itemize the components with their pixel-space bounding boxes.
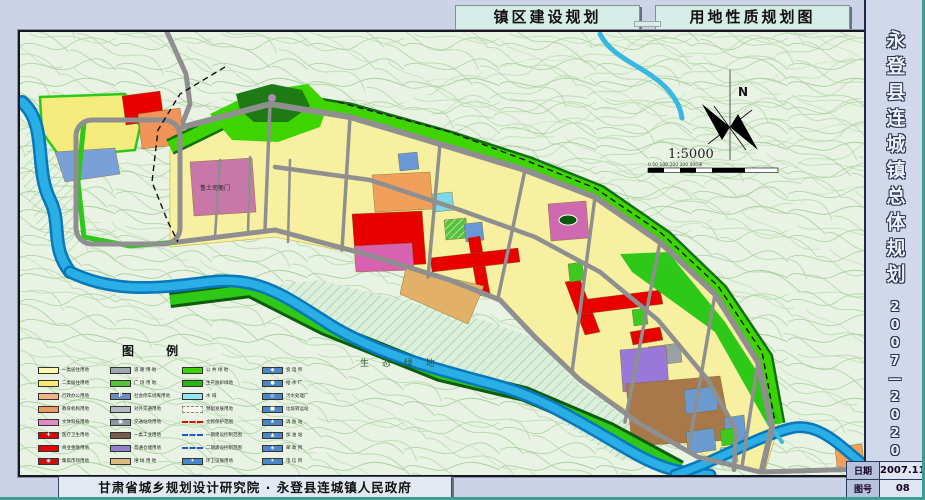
legend-label: 公 共 绿 地	[206, 367, 228, 373]
map-panel: 鲁土司衙门 生 态 绿 地 N 1:5000 0 50 100 200 300 …	[18, 30, 866, 477]
legend-item: 行政办公用地	[38, 390, 89, 402]
legend-item: ✦环卫设施用地	[182, 455, 233, 467]
legend-item: 堆 场 用 地	[110, 455, 156, 467]
legend-label: 邮 政 所	[286, 445, 302, 451]
legend-swatch	[38, 419, 59, 426]
legend-swatch	[182, 421, 203, 423]
legend-item: 二期建设控制范围	[182, 442, 242, 454]
legend-item: ◆变 电 所	[262, 364, 302, 376]
plan-title-vertical: 永登县连城镇总体规划	[882, 30, 909, 290]
legend-label: 对外交通用地	[134, 406, 161, 412]
legend-item: 生产防护绿地	[182, 377, 233, 389]
legend-swatch	[182, 367, 203, 374]
legend-label: 变 电 所	[286, 367, 302, 373]
legend-swatch	[110, 432, 131, 439]
legend-swatch: ■	[262, 406, 283, 413]
legend-label: 行政办公用地	[62, 393, 89, 399]
legend-item: 水 域	[182, 390, 216, 402]
historic-site-label: 鲁土司衙门	[200, 184, 230, 192]
legend-label: 社会停车场库用地	[134, 393, 170, 399]
legend-label: 二期建设控制范围	[206, 445, 242, 451]
legend-swatch	[38, 445, 59, 452]
legend-swatch	[110, 445, 131, 452]
legend-item: ◉集贸市场用地	[38, 455, 89, 467]
scale-ticks: 0 50 100 200 300 400米	[648, 161, 703, 168]
legend-swatch: ◆	[262, 367, 283, 374]
legend: 图 例 一类居住用地二类居住用地行政办公用地教育机构用地文体科技用地✚医疗卫生用…	[34, 338, 344, 470]
legend-title: 图 例	[122, 342, 192, 359]
scale-text: 1:5000	[668, 147, 714, 162]
legend-item: ●给 水 厂	[262, 377, 302, 389]
legend-swatch	[110, 367, 131, 374]
legend-swatch: ✚	[38, 432, 59, 439]
info-table: 日期 2007.11 图号 08	[846, 461, 924, 498]
legend-label: 生产防护绿地	[206, 380, 233, 386]
legend-label: 一类居住用地	[62, 367, 89, 373]
legend-item: 道 路 用 地	[110, 364, 156, 376]
legend-item: P社会停车场库用地	[110, 390, 170, 402]
legend-label: 医疗卫生用地	[62, 432, 89, 438]
legend-label: 给 水 厂	[286, 380, 302, 386]
legend-item: 商业金融用地	[38, 442, 89, 454]
legend-item: 普通仓储用地	[110, 442, 161, 454]
legend-swatch	[38, 367, 59, 374]
legend-label: 交通站场用地	[134, 419, 161, 425]
legend-swatch	[182, 406, 203, 413]
legend-item: ▣交通站场用地	[110, 416, 161, 428]
legend-item: 预留发展用地	[182, 403, 233, 415]
legend-item: ▲加 油 站	[262, 429, 302, 441]
legend-item: ◎污水处理厂	[262, 390, 309, 402]
legend-item: ■垃圾转运站	[262, 403, 309, 415]
legend-item: 一期建设控制范围	[182, 429, 242, 441]
date-label: 日期	[847, 462, 879, 479]
legend-swatch	[182, 380, 203, 387]
legend-item: 二类居住用地	[38, 377, 89, 389]
legend-label: 堆 场 用 地	[134, 458, 156, 464]
title-box-left: 镇区建设规划	[455, 5, 640, 30]
legend-swatch: P	[110, 393, 131, 400]
legend-swatch	[38, 406, 59, 413]
legend-label: 文物保护范围	[206, 419, 233, 425]
sheet-number-value: 08	[880, 480, 925, 497]
legend-swatch	[110, 458, 131, 465]
date-value: 2007.11	[880, 462, 925, 479]
legend-swatch: ●	[262, 380, 283, 387]
legend-item: 文物保护范围	[182, 416, 233, 428]
legend-item: ★消 防 站	[262, 416, 302, 428]
legend-item: 对外交通用地	[110, 403, 161, 415]
legend-swatch	[182, 434, 203, 436]
legend-swatch	[110, 380, 131, 387]
legend-swatch: ◉	[38, 458, 59, 465]
legend-label: 文体科技用地	[62, 419, 89, 425]
legend-swatch: ▣	[110, 419, 131, 426]
legend-label: 广 场 用 地	[134, 380, 156, 386]
legend-items: 一类居住用地二类居住用地行政办公用地教育机构用地文体科技用地✚医疗卫生用地商业金…	[34, 364, 344, 470]
legend-swatch	[38, 380, 59, 387]
legend-label: 教育机构用地	[62, 406, 89, 412]
legend-label: 预留发展用地	[206, 406, 233, 412]
legend-swatch: ★	[262, 419, 283, 426]
legend-swatch: ◈	[262, 445, 283, 452]
legend-item: ◈邮 政 所	[262, 442, 302, 454]
legend-label: 集贸市场用地	[62, 458, 89, 464]
legend-swatch: ▲	[262, 432, 283, 439]
legend-item: 一类居住用地	[38, 364, 89, 376]
legend-item: ✶电 信 所	[262, 455, 302, 467]
legend-swatch	[182, 447, 203, 449]
legend-label: 消 防 站	[286, 419, 302, 425]
legend-item: 广 场 用 地	[110, 377, 156, 389]
legend-label: 道 路 用 地	[134, 367, 156, 373]
legend-item: 教育机构用地	[38, 403, 89, 415]
title-box-right: 用地性质规划图	[655, 5, 850, 30]
legend-label: 环卫设施用地	[206, 458, 233, 464]
eco-green-label: 生 态 绿 地	[360, 357, 440, 369]
north-label: N	[738, 85, 748, 99]
legend-swatch: ✦	[182, 458, 203, 465]
legend-label: 二类居住用地	[62, 380, 89, 386]
legend-label: 一类工业用地	[134, 432, 161, 438]
legend-label: 加 油 站	[286, 432, 302, 438]
legend-label: 一期建设控制范围	[206, 432, 242, 438]
legend-swatch	[182, 393, 203, 400]
plan-period-vertical: 2007—2020	[888, 300, 903, 462]
legend-item: 公 共 绿 地	[182, 364, 228, 376]
legend-label: 普通仓储用地	[134, 445, 161, 451]
credit-bar: 甘肃省城乡规划设计研究院 · 永登县连城镇人民政府	[58, 476, 452, 499]
legend-label: 污水处理厂	[286, 393, 309, 399]
legend-label: 垃圾转运站	[286, 406, 309, 412]
legend-swatch	[110, 406, 131, 413]
legend-swatch	[38, 393, 59, 400]
legend-item: 文体科技用地	[38, 416, 89, 428]
legend-label: 电 信 所	[286, 458, 302, 464]
sidebar: 永登县连城镇总体规划 2007—2020	[864, 0, 924, 500]
legend-item: ✚医疗卫生用地	[38, 429, 89, 441]
legend-label: 水 域	[206, 393, 216, 399]
legend-swatch: ✶	[262, 458, 283, 465]
sheet-number-label: 图号	[847, 480, 879, 497]
legend-item: 一类工业用地	[110, 429, 161, 441]
legend-swatch: ◎	[262, 393, 283, 400]
legend-label: 商业金融用地	[62, 445, 89, 451]
title-connector	[634, 21, 661, 27]
